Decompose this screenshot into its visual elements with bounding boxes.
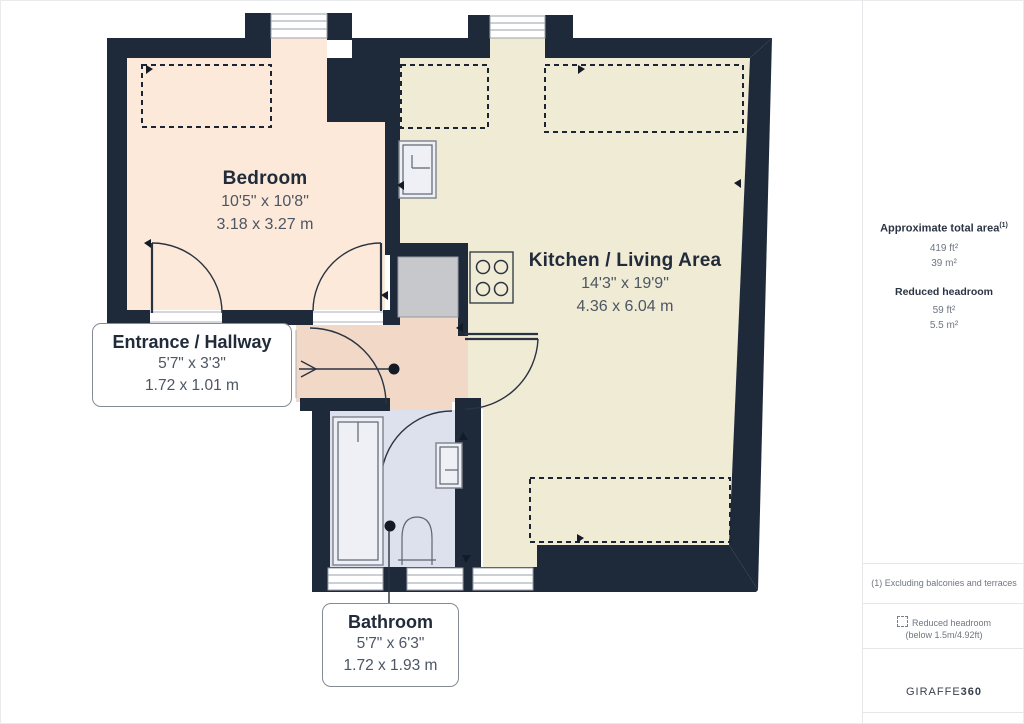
wall-kitchen-hall-side — [458, 243, 468, 336]
floorplan-page: Bedroom 10'5" x 10'8" 3.18 x 3.27 m Kitc… — [0, 0, 1024, 724]
sink-icon — [436, 443, 462, 488]
total-area-m: 39 m² — [863, 256, 1024, 272]
wall-bedroom-kitchen — [385, 122, 400, 255]
reduced-headroom-dashed-icon — [897, 616, 908, 627]
kitchen-cupboard-icon — [399, 141, 436, 198]
wall-bottom-kitchen — [537, 545, 758, 592]
shower-icon — [333, 417, 383, 565]
camera-point-bathroom — [385, 521, 396, 532]
wall-top-left — [107, 38, 245, 58]
bay1-right-pier — [327, 13, 352, 40]
window-kitchen-bay — [490, 16, 545, 38]
window-kitchen-bottom — [473, 568, 533, 590]
wall-left — [107, 38, 127, 330]
separator — [863, 603, 1024, 604]
total-area-title: Approximate total area(1) — [863, 222, 1024, 235]
wall-bedroom-bottom-c — [383, 310, 400, 325]
room-dims-metric: 1.72 x 1.93 m — [333, 655, 448, 677]
bay1-left-pier — [245, 13, 271, 58]
callout-entrance-hallway: Entrance / Hallway 5'7" x 3'3" 1.72 x 1.… — [92, 323, 292, 407]
room-entrance-hallway — [296, 325, 468, 402]
area-summary: Approximate total area(1) 419 ft² 39 m² … — [863, 222, 1024, 334]
info-sidebar: Approximate total area(1) 419 ft² 39 m² … — [862, 0, 1024, 724]
chimney-block — [327, 58, 400, 122]
callout-bathroom: Bathroom 5'7" x 6'3" 1.72 x 1.93 m — [322, 603, 459, 687]
window-bedroom-bay — [271, 14, 327, 38]
wall-bathroom-left — [312, 403, 330, 592]
room-dims-imperial: 5'7" x 3'3" — [103, 353, 281, 375]
bay2-left-pier — [468, 15, 490, 58]
window-bathroom-2 — [407, 568, 463, 590]
room-dims-imperial: 5'7" x 6'3" — [333, 633, 448, 655]
reduced-headroom-legend: Reduced headroom (below 1.5m/4.92ft) — [863, 616, 1024, 641]
wall-kitchen-hall-top — [392, 243, 468, 257]
camera-point-hallway — [389, 364, 400, 375]
stove-hob-icon — [470, 252, 513, 303]
footnote-marker: (1) — [999, 222, 1008, 229]
reduced-headroom-ft: 59 ft² — [863, 303, 1024, 319]
window-bathroom-1 — [328, 568, 383, 590]
area-footnote: (1) Excluding balconies and terraces — [863, 577, 1024, 589]
separator — [863, 563, 1024, 564]
total-area-ft: 419 ft² — [863, 241, 1024, 257]
reduced-headroom-title: Reduced headroom — [863, 286, 1024, 298]
room-name: Entrance / Hallway — [103, 332, 281, 353]
bay2-right-pier — [545, 15, 573, 58]
wall-top-mid — [352, 38, 468, 58]
separator — [863, 712, 1024, 713]
reduced-headroom-m: 5.5 m² — [863, 318, 1024, 334]
giraffe360-logo: GIRAFFE360 — [863, 686, 1024, 698]
room-name: Bathroom — [333, 612, 448, 633]
wall-top-right — [573, 38, 772, 58]
separator — [863, 648, 1024, 649]
kitchen-counter-block — [398, 257, 458, 317]
room-dims-metric: 1.72 x 1.01 m — [103, 375, 281, 397]
